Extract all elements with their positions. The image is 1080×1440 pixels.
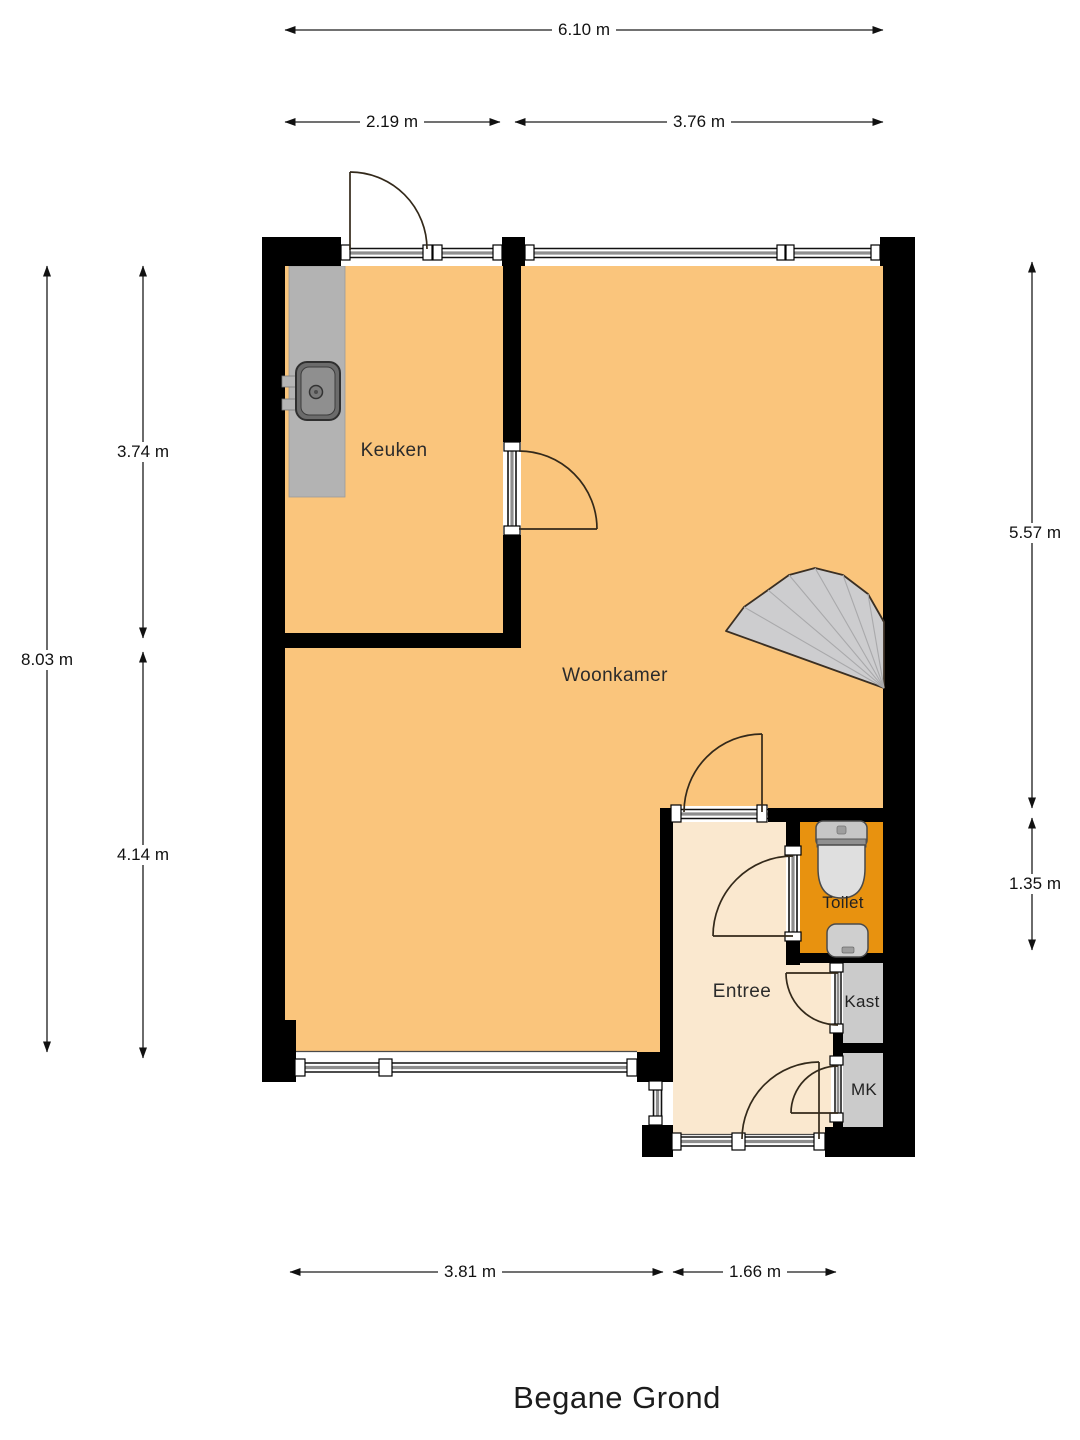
- dim-left-total: 8.03 m: [15, 650, 79, 670]
- room-label-keuken: Keuken: [361, 440, 428, 462]
- dim-right-upper: 5.57 m: [1003, 523, 1067, 543]
- room-label-kast: Kast: [844, 992, 879, 1012]
- dim-top-total: 6.10 m: [552, 20, 616, 40]
- dim-right-lower: 1.35 m: [1003, 874, 1067, 894]
- hand-basin-icon: [827, 924, 868, 957]
- toilet-bowl-icon: [816, 821, 867, 898]
- dim-left-upper: 3.74 m: [111, 442, 175, 462]
- dim-top-woonkamer: 3.76 m: [667, 112, 731, 132]
- dim-left-lower: 4.14 m: [111, 845, 175, 865]
- dim-bottom-left: 3.81 m: [438, 1262, 502, 1282]
- floorplan-canvas: 6.10 m 2.19 m 3.76 m 8.03 m 3.74 m 4.14 …: [0, 0, 1080, 1440]
- room-label-entree: Entree: [713, 981, 771, 1003]
- room-label-woonkamer: Woonkamer: [562, 665, 668, 687]
- room-label-mk: MK: [851, 1080, 877, 1100]
- dim-top-keuken: 2.19 m: [360, 112, 424, 132]
- floorplan-drawing: [0, 0, 1080, 1440]
- dim-bottom-right: 1.66 m: [723, 1262, 787, 1282]
- page-title: Begane Grond: [513, 1380, 721, 1416]
- room-label-toilet: Toilet: [822, 893, 864, 913]
